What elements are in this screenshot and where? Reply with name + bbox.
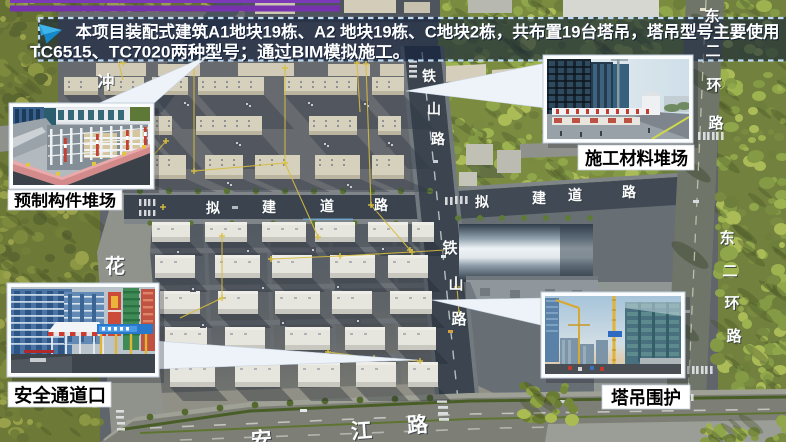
svg-text:本项目装配式建筑A1地块19栋、A2 地块19栋、C地块2栋: 本项目装配式建筑A1地块19栋、A2 地块19栋、C地块2栋，共布置19台塔吊，… <box>76 22 780 42</box>
svg-text:施工材料堆场: 施工材料堆场 <box>585 149 688 169</box>
svg-text:二: 二 <box>705 43 720 60</box>
svg-text:预制构件堆场: 预制构件堆场 <box>14 191 116 210</box>
svg-text:东: 东 <box>704 7 719 25</box>
svg-text:TC6515、TC7020两种型号；通过BIM模拟施工。: TC6515、TC7020两种型号；通过BIM模拟施工。 <box>30 42 410 62</box>
svg-text:环: 环 <box>706 77 721 94</box>
svg-text:安全通道口: 安全通道口 <box>14 385 106 406</box>
svg-text:塔吊围护: 塔吊围护 <box>611 387 681 408</box>
svg-text:路: 路 <box>708 114 724 132</box>
